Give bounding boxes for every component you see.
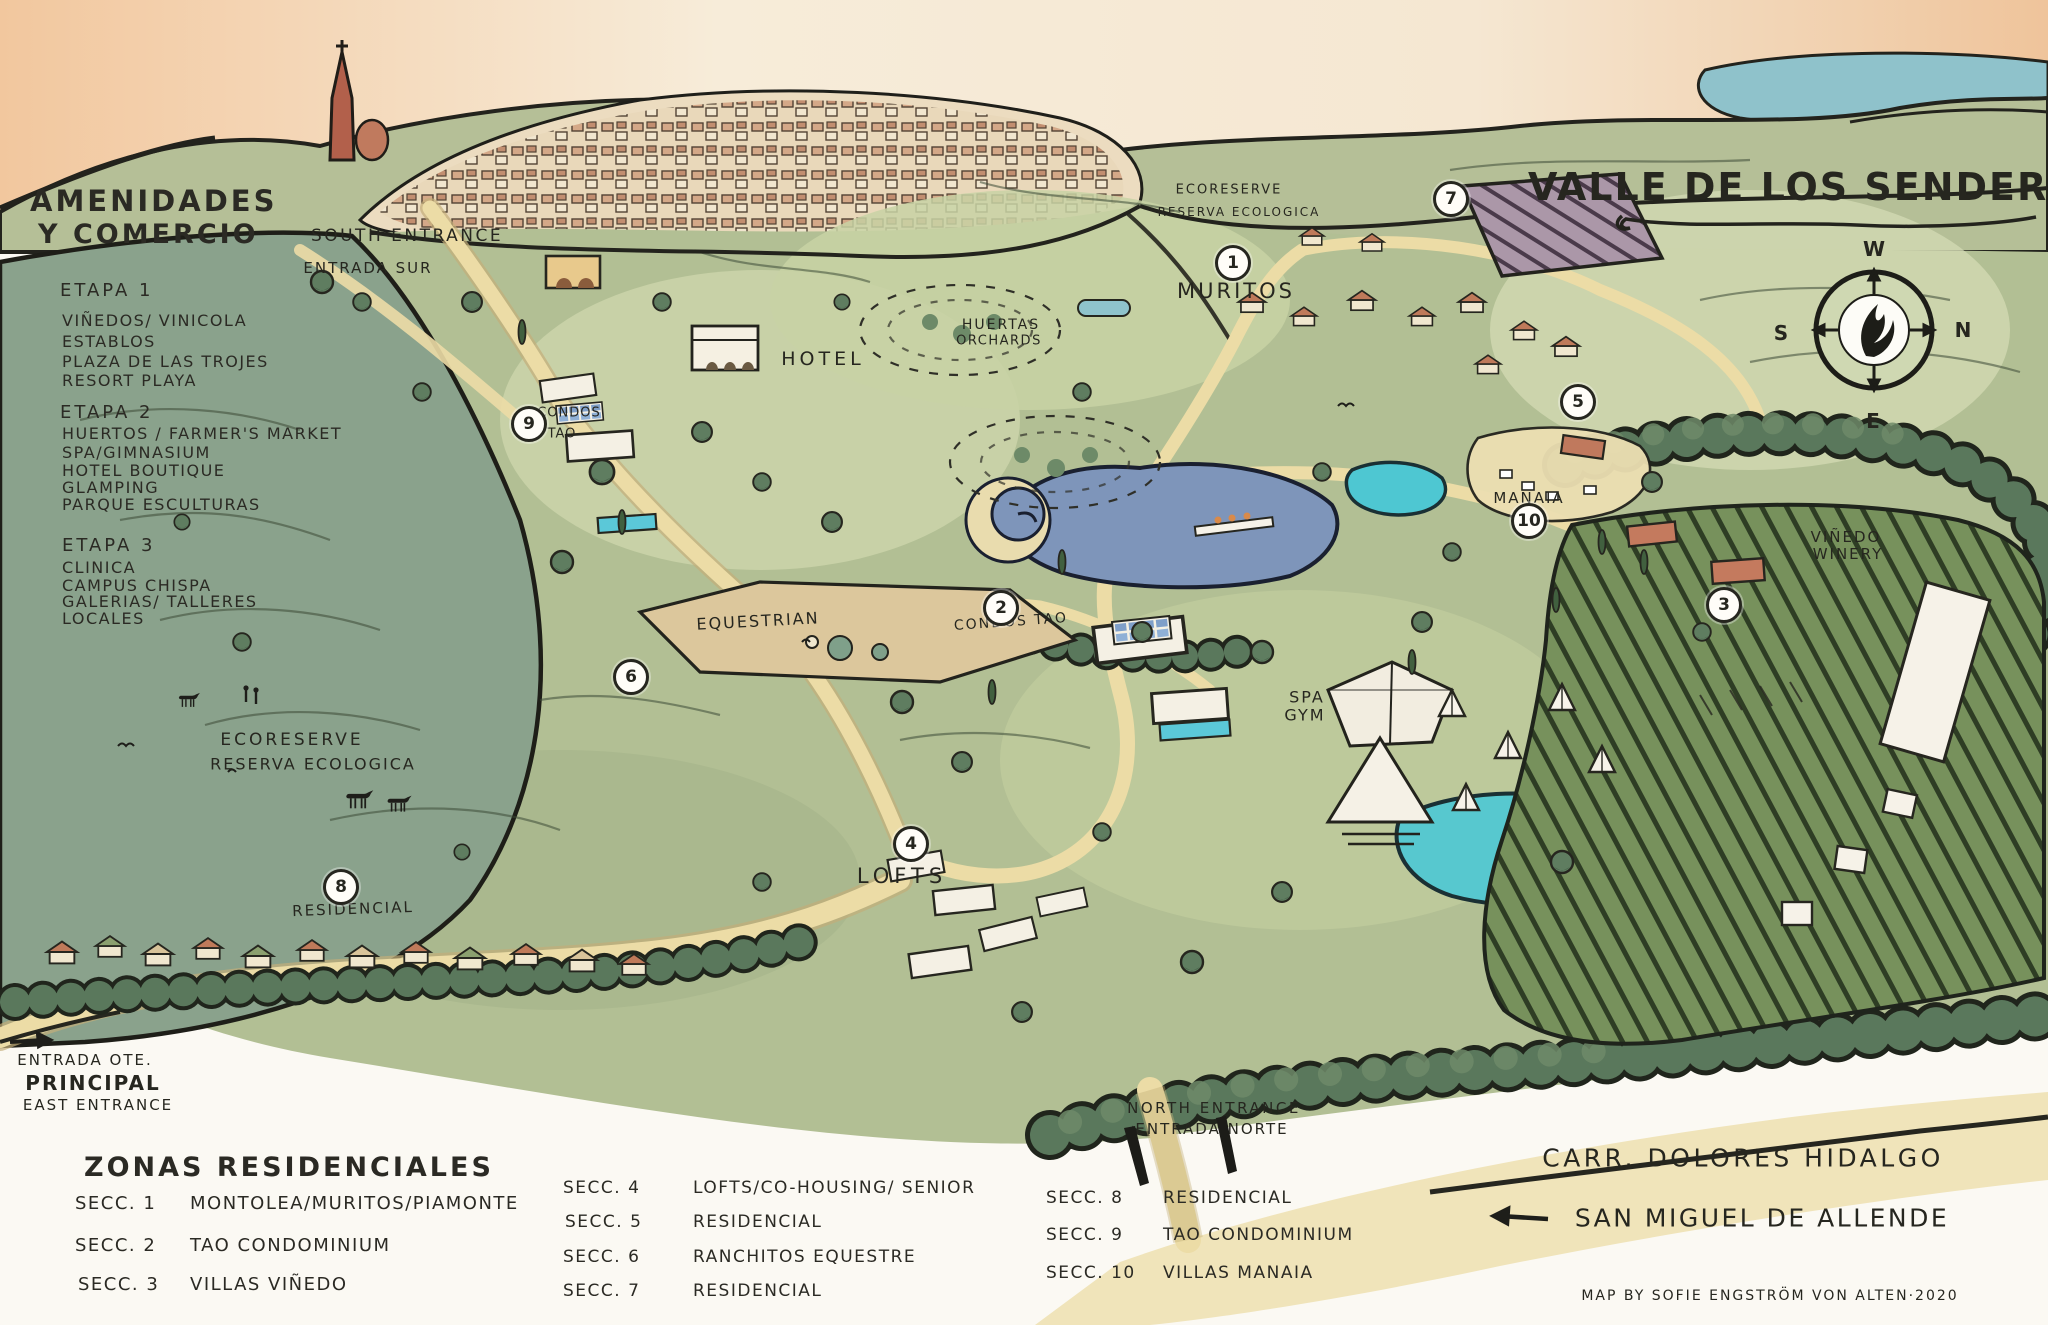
etapa2-title: ETAPA 2 <box>60 402 153 423</box>
etapa3-item: LOCALES <box>62 609 145 628</box>
zone-row-label: SECC. 2 <box>75 1235 156 1256</box>
north-entrance-label: ENTRADA NORTE <box>1135 1120 1288 1138</box>
compass-e-label: E <box>1866 409 1880 433</box>
compass-n-label: N <box>1955 318 1972 342</box>
zone-row-label: SECC. 5 <box>565 1212 642 1232</box>
etapa3-title: ETAPA 3 <box>62 535 155 556</box>
vineyard <box>1484 505 2044 1044</box>
zone-row-desc: MONTOLEA/MURITOS/PIAMONTE <box>190 1193 519 1214</box>
zone-row-label: SECC. 9 <box>1046 1225 1123 1245</box>
ecoreserve-west-label: RESERVA ECOLOGICA <box>210 755 416 774</box>
amenities-heading-line1: AMENIDADES <box>30 184 277 218</box>
map-title: VALLE DE LOS SENDEROS <box>1528 165 2048 209</box>
section-marker-7: 7 <box>1433 181 1469 217</box>
section-marker-1: 1 <box>1215 245 1251 281</box>
south-entrance-label-es: ENTRADA SUR <box>303 259 432 277</box>
compass-s-label: S <box>1774 321 1788 345</box>
etapa1-title: ETAPA 1 <box>60 280 153 301</box>
zone-row-desc: RANCHITOS EQUESTRE <box>693 1247 916 1267</box>
section-marker-9: 9 <box>511 406 547 442</box>
vinedo-winery-label: WINERY <box>1813 545 1884 563</box>
illustrated-map-valle-de-los-senderos: VALLE DE LOS SENDEROS AMENIDADES Y COMER… <box>0 0 2048 1325</box>
etapa1-item: PLAZA DE LAS TROJES <box>62 352 269 371</box>
ecoreserve-north-label: ECORESERVE <box>1176 183 1283 198</box>
huertas-orchards-label: ORCHARDS <box>956 334 1042 349</box>
zones-heading: ZONAS RESIDENCIALES <box>84 1152 494 1183</box>
spa-gym-label: SPA <box>1289 688 1325 707</box>
zone-row-desc: VILLAS MANAIA <box>1163 1263 1314 1283</box>
section-marker-2: 2 <box>983 590 1019 626</box>
map-credit: MAP BY SOFIE ENGSTRÖM VON ALTEN·2020 <box>1581 1288 1958 1304</box>
san-miguel-label: SAN MIGUEL DE ALLENDE <box>1575 1204 1949 1233</box>
zone-row-desc: RESIDENCIAL <box>693 1212 822 1232</box>
carr-dolores-hidalgo-label: CARR. DOLORES HIDALGO <box>1542 1144 1944 1173</box>
muritos-label: MURITOS <box>1177 279 1295 303</box>
zone-row-desc: TAO CONDOMINIUM <box>1163 1225 1354 1245</box>
zone-row-label: SECC. 6 <box>563 1247 640 1267</box>
section-marker-10: 10 <box>1511 503 1547 539</box>
zone-row-desc: TAO CONDOMINIUM <box>190 1235 391 1256</box>
zone-row-label: SECC. 7 <box>563 1281 640 1301</box>
zone-row-label: SECC. 1 <box>75 1193 156 1214</box>
zone-row-desc: RESIDENCIAL <box>1163 1188 1292 1208</box>
lofts-label: LOFTS <box>857 864 947 888</box>
ecoreserve-west-label: ECORESERVE <box>220 730 363 750</box>
east-entrance-label: ENTRADA OTE. <box>17 1051 152 1069</box>
zone-row-label: SECC. 4 <box>563 1178 640 1198</box>
section-marker-4: 4 <box>893 826 929 862</box>
south-entrance-label-en: SOUTH ENTRANCE <box>311 226 503 246</box>
turquoise-pond <box>1346 462 1445 514</box>
etapa1-item: RESORT PLAYA <box>62 371 197 390</box>
section-marker-3: 3 <box>1706 587 1742 623</box>
etapa2-item: PARQUE ESCULTURAS <box>62 495 261 514</box>
etapa2-item: SPA/GIMNASIUM <box>62 443 211 462</box>
manaia-beach-club <box>1468 428 1651 522</box>
compass-w-label: W <box>1863 237 1885 261</box>
condos-tao-9-label: CONDOS <box>537 406 601 421</box>
hotel-label: HOTEL <box>781 348 864 370</box>
spa-gym-label: GYM <box>1284 706 1325 725</box>
south-gate <box>546 256 600 288</box>
compass-icon <box>1814 270 1934 390</box>
amenities-heading-line2: Y COMERCIO <box>38 219 259 250</box>
etapa3-item: CLINICA <box>62 558 136 577</box>
zone-row-desc: VILLAS VIÑEDO <box>190 1274 348 1295</box>
section-marker-5: 5 <box>1560 384 1596 420</box>
section-marker-8: 8 <box>323 869 359 905</box>
east-entrance-label: PRINCIPAL <box>25 1071 160 1095</box>
huertas-orchards-label: HUERTAS <box>962 317 1040 333</box>
etapa1-item: ESTABLOS <box>62 332 156 351</box>
zone-row-label: SECC. 8 <box>1046 1188 1123 1208</box>
condos-tao-9-label: TAO <box>548 427 577 442</box>
north-entrance-label: NORTH ENTRANCE <box>1127 1099 1301 1117</box>
etapa2-item: HUERTOS / FARMER'S MARKET <box>62 424 342 443</box>
east-entrance-label: EAST ENTRANCE <box>23 1096 173 1114</box>
vinedo-winery-label: VIÑEDO <box>1811 528 1882 546</box>
zone-row-desc: RESIDENCIAL <box>693 1281 822 1301</box>
zone-row-label: SECC. 3 <box>78 1274 159 1295</box>
ecoreserve-north-label: RESERVA ECOLOGICA <box>1158 205 1321 219</box>
zone-row-desc: LOFTS/CO-HOUSING/ SENIOR <box>693 1178 975 1198</box>
etapa1-item: VIÑEDOS/ VINICOLA <box>62 311 247 330</box>
section-marker-6: 6 <box>613 659 649 695</box>
building-hotel <box>692 326 758 370</box>
zone-row-label: SECC. 10 <box>1046 1263 1136 1283</box>
